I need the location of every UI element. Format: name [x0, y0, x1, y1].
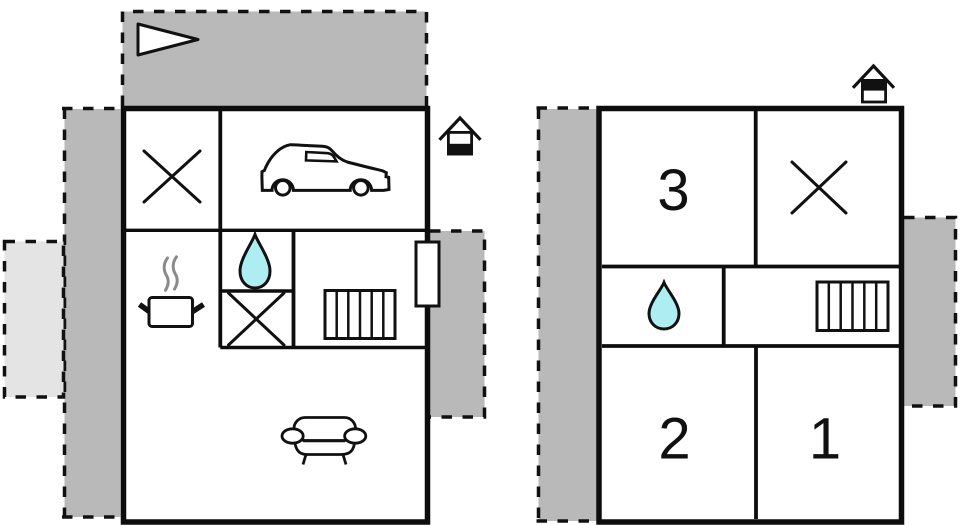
svg-text:3: 3	[657, 158, 689, 223]
svg-text:2: 2	[658, 407, 690, 472]
svg-text:1: 1	[809, 407, 841, 472]
